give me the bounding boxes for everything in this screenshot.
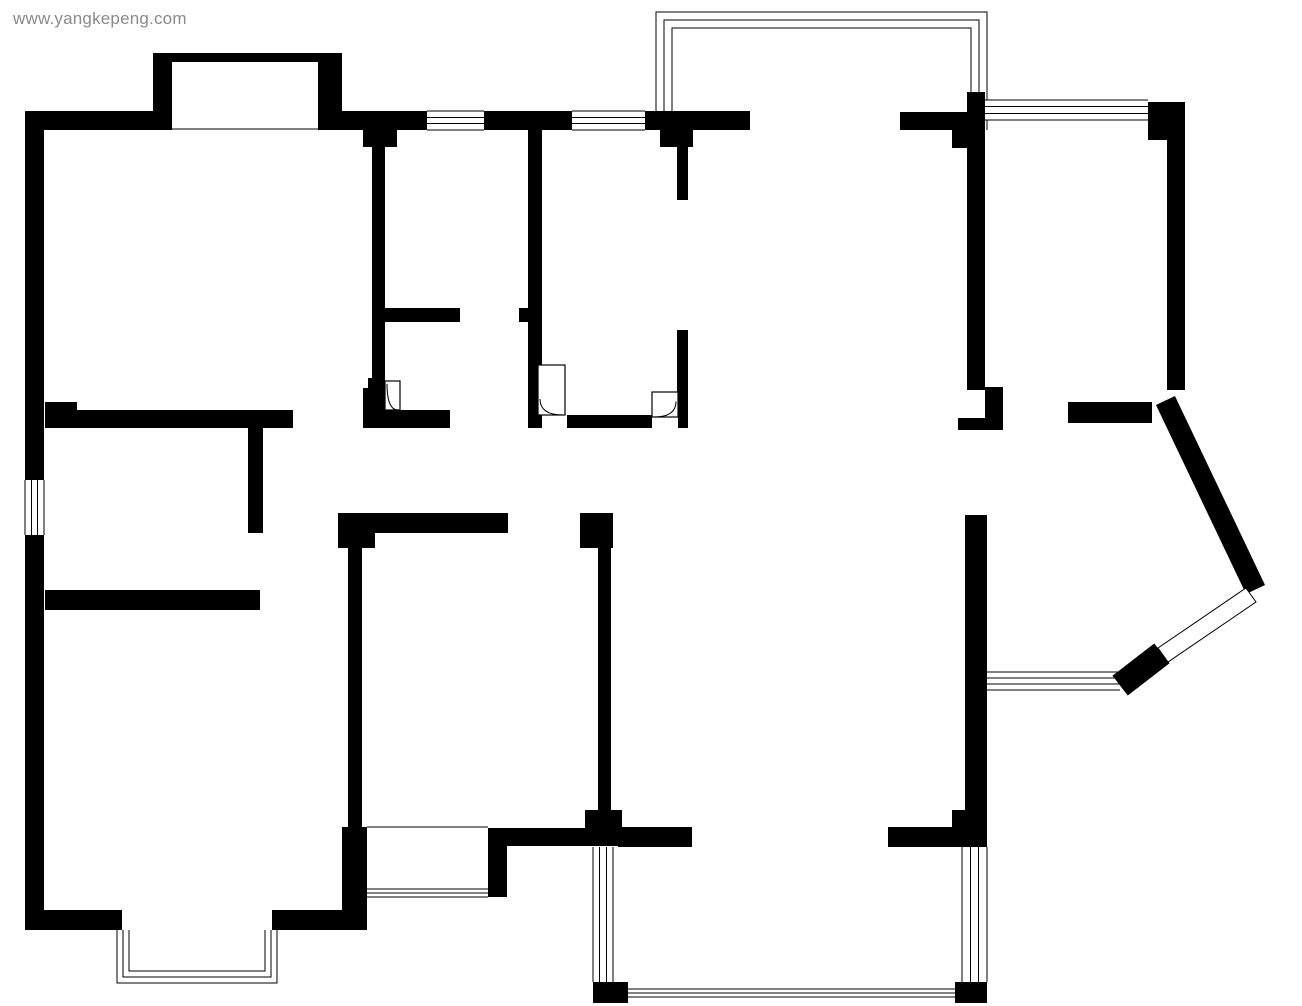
- wall: [1167, 140, 1185, 390]
- wall: [25, 910, 122, 930]
- wall: [318, 53, 342, 130]
- wall: [519, 308, 528, 322]
- wall: [952, 810, 987, 847]
- wall: [348, 548, 362, 827]
- diagonal-wall: [1130, 661, 1152, 678]
- wall: [660, 130, 693, 147]
- wall: [153, 53, 342, 62]
- window-glass: [985, 100, 1148, 120]
- wall: [965, 515, 987, 845]
- wall: [507, 828, 620, 846]
- wall: [952, 130, 967, 148]
- wall: [153, 53, 172, 130]
- diagonal-wall: [1170, 410, 1251, 580]
- wall: [900, 112, 967, 130]
- wall: [1148, 102, 1185, 140]
- wall: [25, 111, 153, 130]
- wall: [585, 810, 622, 828]
- wall: [338, 513, 375, 548]
- window-glass: [572, 111, 645, 130]
- wall: [967, 92, 985, 143]
- wall: [985, 387, 1003, 423]
- wall: [567, 415, 652, 428]
- wall: [248, 428, 263, 533]
- wall: [25, 535, 44, 930]
- wall: [484, 111, 572, 130]
- window-glass: [593, 847, 613, 982]
- wall: [363, 130, 397, 147]
- balcony-rail-line: [123, 930, 271, 977]
- window-glass: [962, 847, 987, 982]
- diagonal-window: [1158, 588, 1256, 662]
- wall: [580, 513, 613, 548]
- wall: [618, 827, 692, 847]
- wall: [342, 111, 427, 130]
- floor-plan-page: www.yangkepeng.com: [0, 0, 1302, 1006]
- watermark: www.yangkepeng.com: [13, 9, 187, 29]
- balcony-rail-line: [117, 930, 277, 983]
- wall: [677, 147, 688, 200]
- wall: [45, 402, 77, 410]
- wall: [385, 308, 460, 322]
- door-leaf: [652, 392, 678, 417]
- floor-plan-svg: [0, 0, 1302, 1006]
- wall: [645, 111, 750, 130]
- window-glass: [985, 672, 1120, 690]
- wall: [598, 548, 611, 810]
- wall: [967, 143, 985, 390]
- balcony-rail-line: [129, 930, 265, 971]
- wall: [45, 590, 260, 610]
- wall: [888, 827, 952, 847]
- wall: [677, 330, 688, 415]
- window-glass: [427, 111, 484, 130]
- wall: [1068, 402, 1152, 423]
- wall: [955, 982, 987, 1003]
- wall: [678, 415, 688, 428]
- wall: [272, 910, 367, 930]
- wall: [958, 418, 1003, 430]
- window-glass: [25, 480, 44, 535]
- wall: [45, 410, 293, 428]
- wall: [488, 828, 507, 897]
- wall: [372, 147, 385, 417]
- wall: [593, 982, 628, 1003]
- wall: [25, 111, 44, 480]
